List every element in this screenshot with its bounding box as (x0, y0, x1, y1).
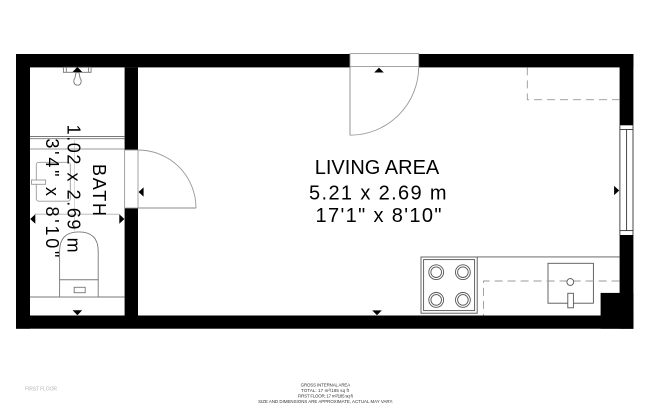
svg-text:SIZE AND DIMENSIONS ARE APPROX: SIZE AND DIMENSIONS ARE APPROXIMATE, ACT… (258, 399, 393, 404)
svg-text:BATH: BATH (89, 164, 109, 216)
svg-text:5.21 x 2.69 m: 5.21 x 2.69 m (309, 183, 447, 205)
svg-text:TOTAL: 17 m²/185 sq ft: TOTAL: 17 m²/185 sq ft (301, 388, 350, 393)
svg-text:17'1" x 8'10": 17'1" x 8'10" (316, 205, 442, 227)
svg-text:LIVING AREA: LIVING AREA (315, 157, 440, 179)
svg-text:3'4" x 8'10": 3'4" x 8'10" (42, 138, 62, 257)
svg-text:FIRST FLOOR: 17 m²/185 sq ft: FIRST FLOOR: 17 m²/185 sq ft (298, 394, 354, 399)
svg-text:GROSS INTERNAL AREA: GROSS INTERNAL AREA (301, 383, 351, 388)
svg-text:FIRST FLOOR: FIRST FLOOR (25, 386, 57, 392)
